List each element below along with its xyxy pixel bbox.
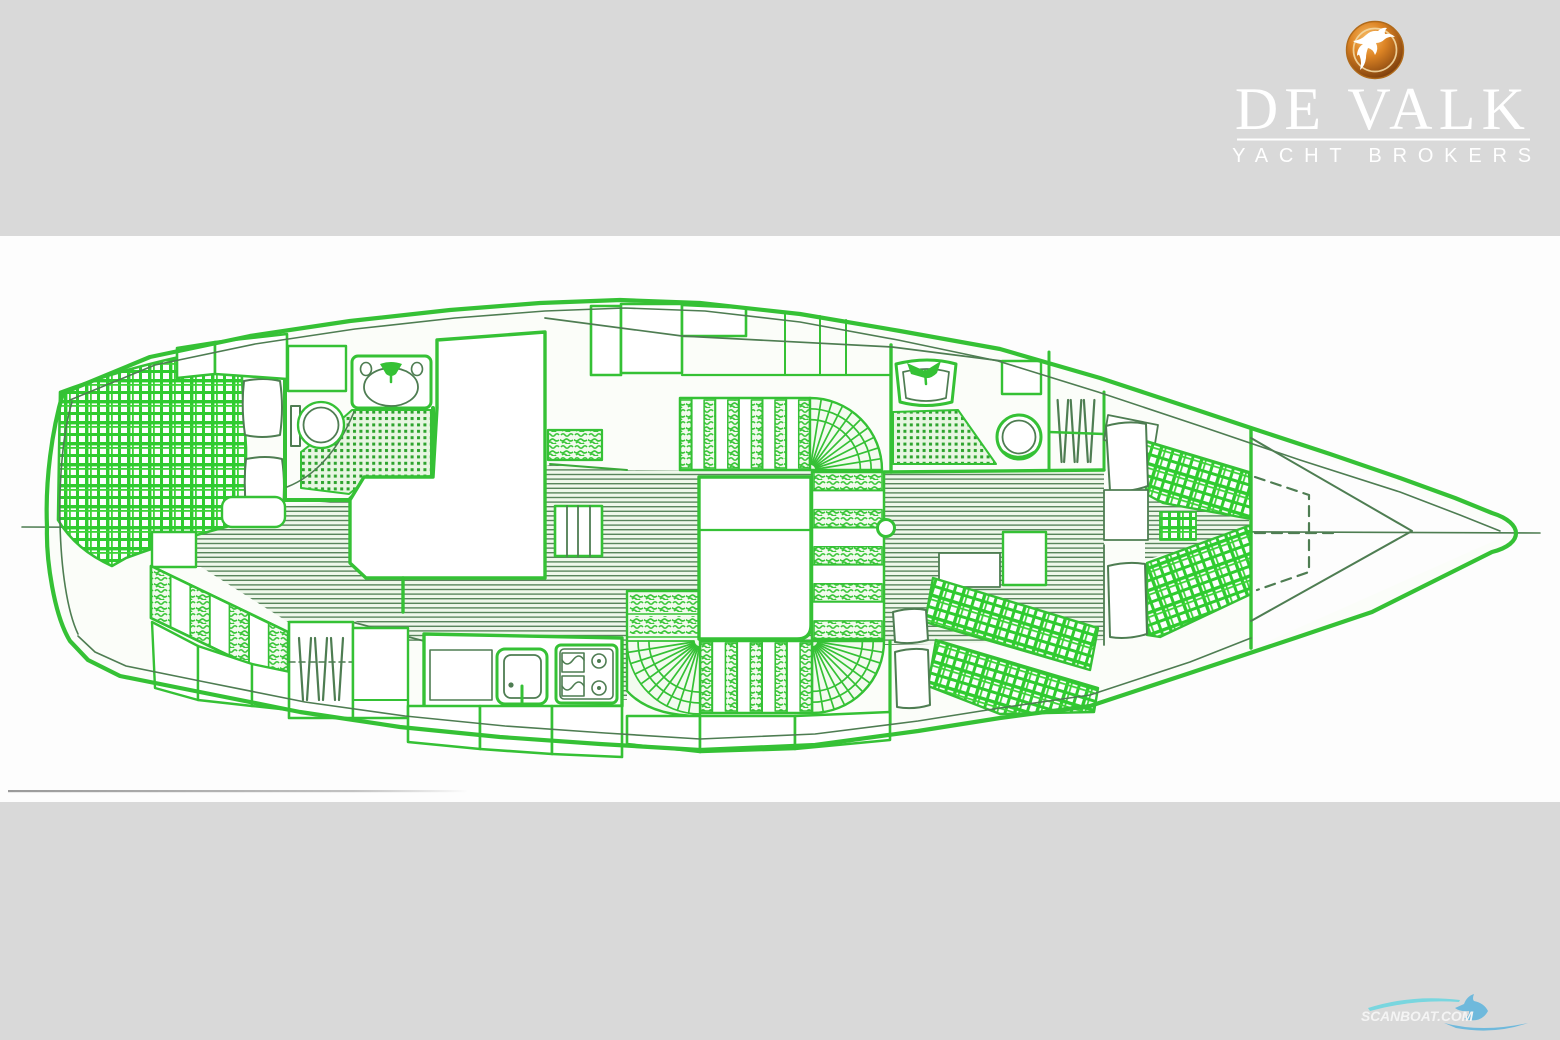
svg-text:DE VALK: DE VALK [1235,76,1531,142]
svg-text:YACHT BROKERS: YACHT BROKERS [1232,145,1542,167]
svg-text:SCANBOAT.COM: SCANBOAT.COM [1361,1009,1474,1024]
